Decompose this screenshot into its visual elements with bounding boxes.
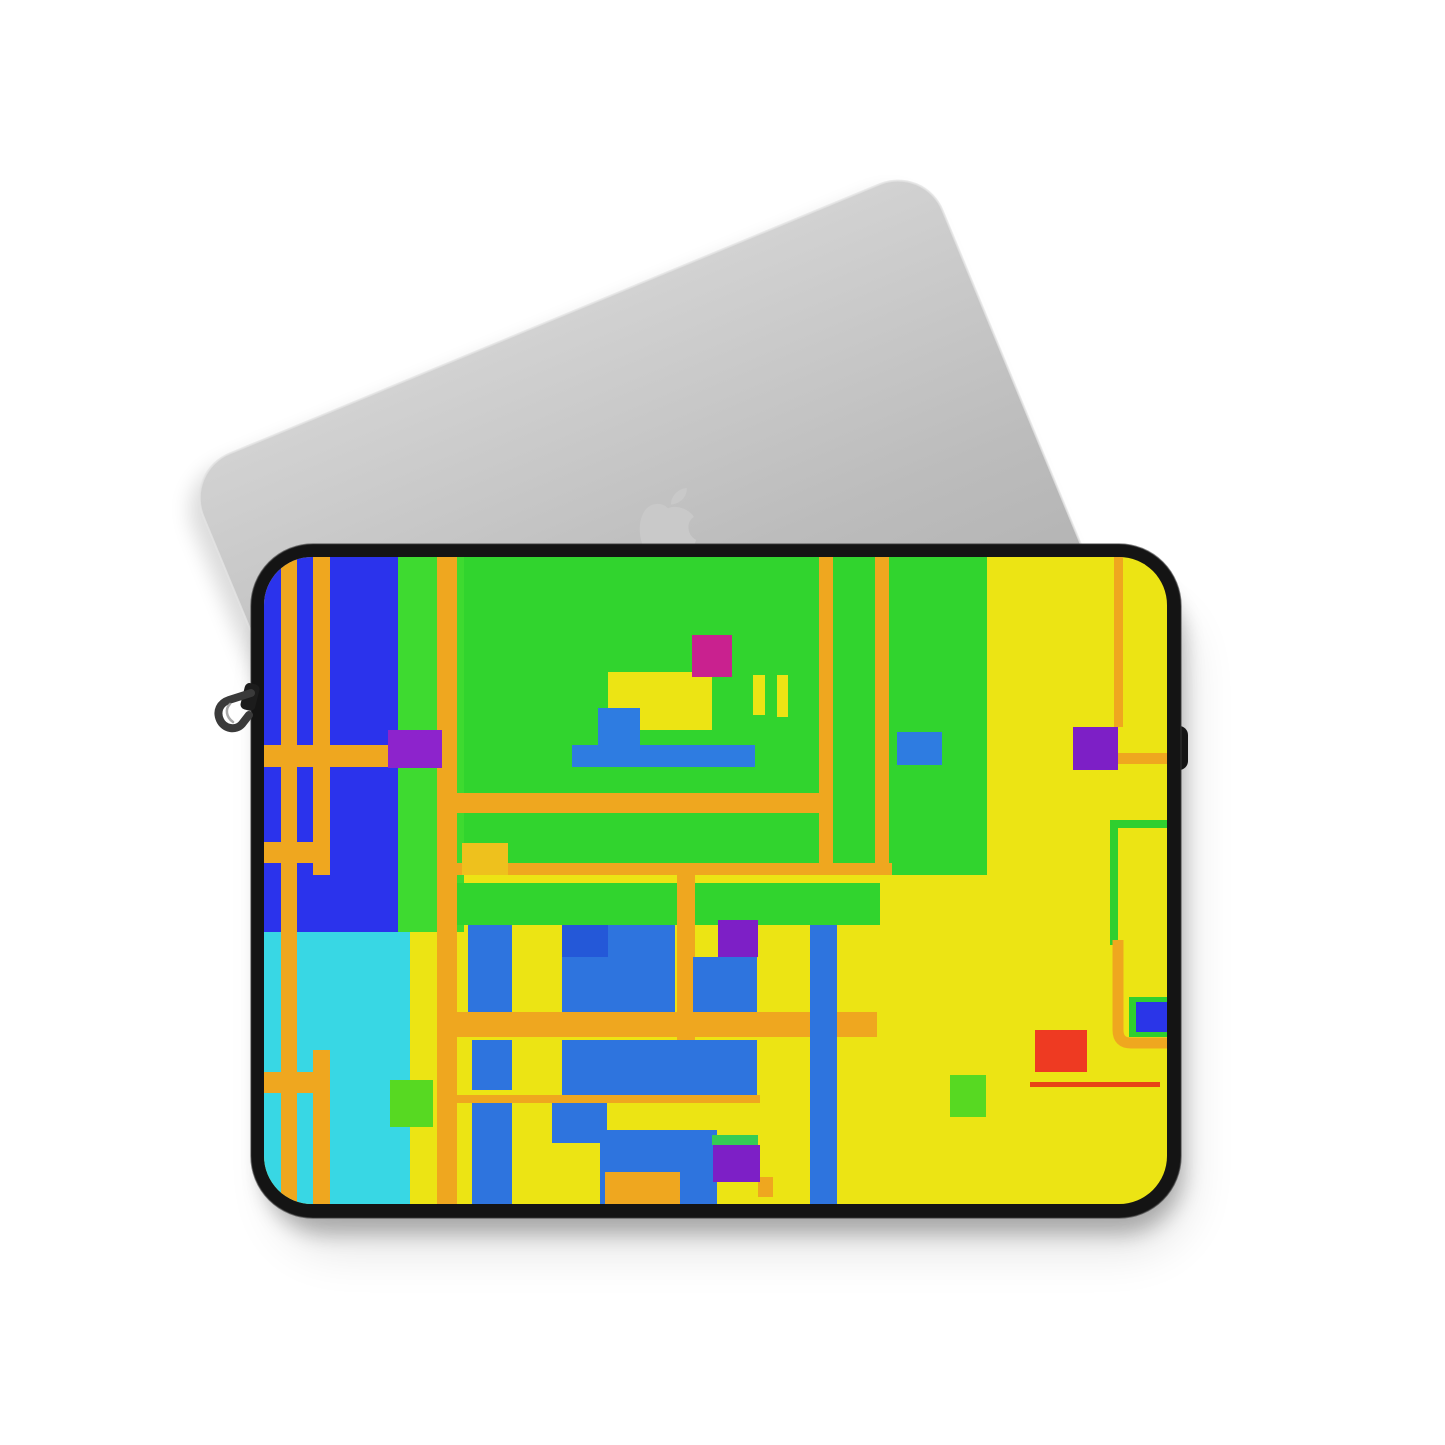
blue-column-1 <box>468 925 512 1012</box>
green-frame-left <box>1110 820 1118 945</box>
product-photo-canvas <box>0 0 1445 1445</box>
orange-band-left-1 <box>264 745 398 767</box>
green-band <box>457 883 880 925</box>
blue-block-3 <box>562 1040 757 1095</box>
laptop-sleeve <box>218 544 1188 1218</box>
blue-block-2 <box>693 957 757 1012</box>
orange-stripe-e <box>875 557 889 875</box>
purple-square-mid <box>718 920 758 957</box>
blue-square-on-green <box>897 732 942 765</box>
orange-stripe-c <box>437 557 457 1204</box>
sleeve-pattern <box>264 557 1171 1207</box>
red-line <box>1030 1082 1160 1087</box>
motif-blue-bar <box>572 745 755 767</box>
green-strip <box>712 1135 758 1145</box>
purple-square-left <box>388 730 442 768</box>
blue-square-frame <box>1136 1002 1171 1032</box>
magenta-square <box>692 635 732 677</box>
green-field <box>464 557 987 875</box>
blue-column-tall <box>810 925 837 1204</box>
blue-block-1-sub <box>562 925 608 957</box>
orange-block-bottom <box>605 1172 680 1204</box>
orange-stripe-b <box>313 557 330 875</box>
purple-square-right <box>1073 727 1118 770</box>
orange-stub <box>758 1177 773 1197</box>
motif-blue-vertical <box>598 708 640 745</box>
purple-square-bottom <box>713 1145 760 1182</box>
orange-stripe-d <box>819 557 833 875</box>
orange-stripe-a <box>281 557 297 1204</box>
yellow-tick-2 <box>777 675 788 717</box>
blue-column-3 <box>472 1103 512 1204</box>
blue-block-4 <box>552 1103 607 1143</box>
gold-block <box>462 843 508 875</box>
orange-band-left-2 <box>264 842 330 863</box>
orange-band-left-3 <box>264 1072 327 1093</box>
yellow-tick-1 <box>753 675 765 715</box>
blue-column-2 <box>472 1040 512 1090</box>
orange-thin-line <box>447 1095 760 1103</box>
red-square <box>1035 1030 1087 1072</box>
green-square-right <box>950 1075 986 1117</box>
orange-band-center-2 <box>443 863 892 875</box>
orange-right-vertical <box>1114 557 1123 727</box>
product-photo <box>0 0 1445 1445</box>
orange-right-horizontal <box>1118 753 1171 764</box>
orange-band-center-1 <box>457 793 824 813</box>
green-square-left <box>390 1080 433 1127</box>
green-frame-top <box>1110 820 1171 828</box>
